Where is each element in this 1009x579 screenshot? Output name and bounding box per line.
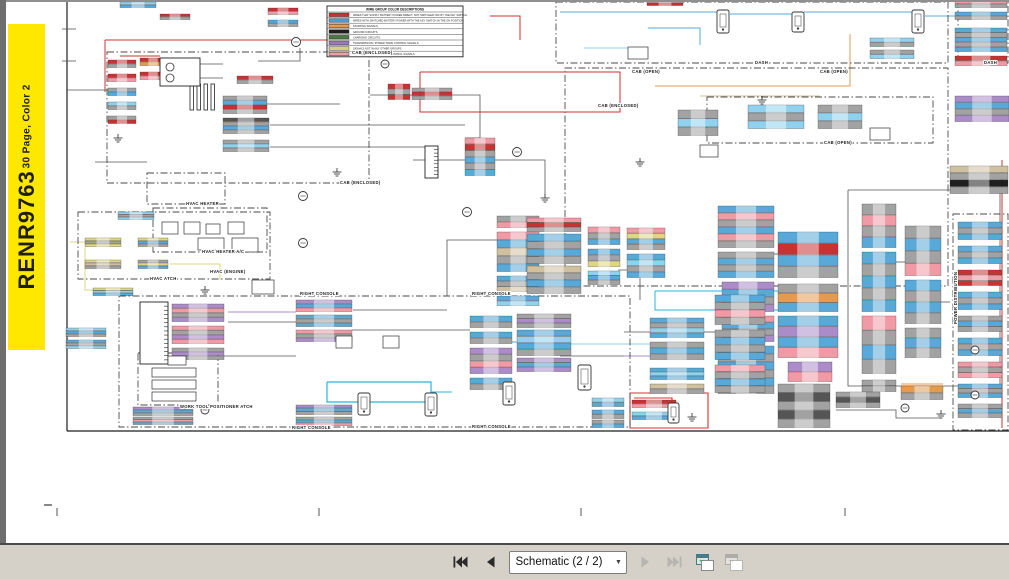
harness-label-band <box>152 417 174 425</box>
harness-label-band <box>736 206 756 248</box>
region-label: HVAC (ENGINE) <box>210 269 246 274</box>
region-label: WORK TOOL POSITIONER ATCH <box>180 404 253 409</box>
harness-label-band <box>639 254 653 278</box>
legend-swatch <box>329 41 349 45</box>
harness-label-band <box>797 284 819 312</box>
pop-out-button[interactable]: → <box>723 553 743 571</box>
harness-label-band <box>972 246 988 264</box>
region-label: RIGHT CONSOLE <box>292 425 331 430</box>
harness-label-band <box>972 12 991 20</box>
next-page-icon <box>640 555 652 569</box>
harness-label-band <box>602 410 614 419</box>
legend-swatch <box>329 24 349 28</box>
harness-label-band <box>832 105 848 129</box>
component-box <box>336 336 352 348</box>
harness-label-band <box>483 316 498 328</box>
component-box <box>628 47 648 59</box>
legend-swatch <box>329 19 349 23</box>
harness-label-band <box>148 238 159 247</box>
component-box <box>383 336 399 348</box>
region-boundary <box>107 52 369 183</box>
harness-label-band <box>873 204 885 248</box>
harness-label-band <box>972 270 988 286</box>
switch-pin <box>363 410 365 412</box>
key-switch <box>160 58 200 86</box>
harness-label-band <box>475 138 486 176</box>
window-top-edge <box>0 0 1009 2</box>
harness-label-band <box>314 315 334 327</box>
harness-label-band <box>148 72 157 80</box>
last-page-icon <box>666 555 683 569</box>
component-box <box>700 145 718 157</box>
harness-label-band <box>602 398 614 407</box>
prev-page-icon <box>484 555 496 569</box>
region-label: DASH <box>755 60 768 65</box>
harness-label-band <box>544 266 563 294</box>
harness-label-band <box>132 2 145 8</box>
harness-label-band <box>598 249 610 267</box>
legend-row-text: STARTING SIGNALS. <box>353 24 379 28</box>
harness-label-band <box>278 20 289 27</box>
harness-label-band <box>117 116 127 124</box>
harness-label-band <box>884 38 900 47</box>
harness-label-band <box>646 412 662 420</box>
harness-label-band <box>802 362 818 382</box>
switch-pin <box>917 28 919 30</box>
region-label: POWER DISTRIBUTION <box>953 272 958 324</box>
page-select-dropdown[interactable]: Schematic (2 / 2) ▼ <box>509 551 627 574</box>
first-page-icon <box>452 555 469 569</box>
harness-label-band <box>873 380 885 392</box>
page-select-value: Schematic (2 / 2) <box>510 556 612 568</box>
region-label: RIGHT CONSOLE <box>472 424 511 429</box>
component-box <box>228 222 244 234</box>
pop-in-button[interactable]: ← <box>694 553 714 571</box>
harness-label-band <box>79 340 93 349</box>
region-label: CAB (ENCLOSED) <box>598 103 639 108</box>
legend-row-text: GROUND CIRCUITS. <box>353 30 378 34</box>
diode <box>190 84 194 110</box>
component-box <box>252 280 274 294</box>
harness-label-band <box>238 140 255 152</box>
harness-label-band <box>667 384 686 394</box>
region-label: HVAC HEATER A/C <box>202 249 244 254</box>
wire <box>447 240 497 296</box>
harness-label-band <box>97 260 110 269</box>
wire <box>648 28 700 45</box>
region-label: CAB (OPEN) <box>632 69 660 74</box>
harness-label-band <box>189 304 208 322</box>
component-box <box>162 222 178 234</box>
harness-label-band <box>278 8 289 15</box>
last-page-button[interactable] <box>665 552 685 572</box>
harness-label-band <box>483 332 498 344</box>
pop-out-arrow-icon: → <box>727 555 736 564</box>
region-label: CAB (ENCLOSED) <box>340 180 381 185</box>
harness-label-band <box>969 166 990 194</box>
harness-label-band <box>510 296 525 306</box>
harness-label-band <box>117 88 127 96</box>
harness-label-band <box>731 365 749 393</box>
harness-label-band <box>639 228 653 250</box>
harness-label-band <box>797 316 819 358</box>
legend-title: WIRE GROUP COLOR DESCRIPTIONS <box>366 7 424 11</box>
harness-label-band <box>148 58 157 66</box>
component-box <box>184 222 200 234</box>
diode <box>211 84 215 110</box>
diode <box>197 84 201 110</box>
region-label: HVAC HEATER <box>186 201 219 206</box>
legend-row-text: CHARGING CIRCUITS. <box>353 35 381 39</box>
harness-label-band <box>189 326 208 344</box>
wire <box>655 34 850 86</box>
harness-label-band <box>972 404 988 418</box>
harness-label-band <box>598 227 610 245</box>
region-label: HVAC ATCH <box>150 276 177 281</box>
harness-label-band <box>667 318 686 338</box>
legend-row-text: WIRES THAT SUPPLY BATTERY POWER DIRECT. … <box>353 13 468 17</box>
legend-swatch <box>329 47 349 51</box>
harness-label-band <box>106 288 120 296</box>
harness-label-band <box>667 368 686 380</box>
wire <box>490 16 520 40</box>
schematic-viewer-window: WIRE GROUP COLOR DESCRIPTIONSWIRES THAT … <box>0 0 1009 579</box>
region-label: DASH <box>984 60 997 65</box>
diode <box>204 84 208 110</box>
switch-pin <box>583 385 585 387</box>
first-page-button[interactable] <box>451 552 471 572</box>
manual-number: RENR9763 <box>14 170 40 289</box>
pop-in-arrow-icon: ← <box>698 555 707 564</box>
region-boundary <box>147 173 225 204</box>
wire <box>327 382 431 402</box>
switch-pin <box>672 418 674 420</box>
harness-label-band <box>395 84 403 100</box>
harness-label-band <box>884 50 900 59</box>
harness-label-band <box>314 330 334 342</box>
window-left-edge <box>0 0 6 545</box>
harness-label-band <box>534 330 553 356</box>
harness-label-band <box>238 118 255 134</box>
harness-label-band <box>510 216 525 228</box>
harness-label-band <box>850 392 866 408</box>
harness-label-band <box>646 400 662 408</box>
harness-label-band <box>972 362 988 378</box>
wire <box>370 95 480 138</box>
schematic-drawing: WIRE GROUP COLOR DESCRIPTIONSWIRES THAT … <box>0 0 1009 545</box>
legend-swatch <box>329 13 349 17</box>
region-label: RIGHT CONSOLE <box>300 291 339 296</box>
switch-pin <box>430 411 432 413</box>
harness-label-band <box>314 405 334 415</box>
legend-swatch <box>329 35 349 39</box>
component-box <box>870 128 890 140</box>
harness-label-band <box>534 358 553 372</box>
legend-swatch <box>329 30 349 34</box>
component-box <box>152 392 196 401</box>
region-label: CAB (OPEN) <box>820 69 848 74</box>
region-label: RIGHT CONSOLE <box>472 291 511 296</box>
harness-label-band <box>249 76 262 84</box>
harness-label-band <box>117 60 127 68</box>
harness-label-band <box>425 88 439 100</box>
harness-label-band <box>148 260 159 269</box>
component-box <box>152 368 196 377</box>
harness-label-band <box>152 407 174 416</box>
harness-label-band <box>972 222 988 240</box>
harness-label-band <box>736 252 756 278</box>
harness-label-band <box>510 276 525 292</box>
harness-label-band <box>130 212 143 220</box>
wire <box>105 40 350 56</box>
harness-label-band <box>917 280 930 324</box>
harness-label-band <box>97 238 110 247</box>
harness-label-band <box>873 316 885 374</box>
harness-label-band <box>483 348 498 374</box>
switch-pin <box>797 27 799 29</box>
navigation-toolbar: Schematic (2 / 2) ▼ ← <box>0 545 1009 579</box>
pin-connector <box>425 146 438 178</box>
harness-label-band <box>602 420 614 428</box>
harness-label-band <box>667 342 686 360</box>
region-label: CAB (ENCLOSED) <box>352 50 393 55</box>
harness-label-band <box>483 378 498 390</box>
harness-label-band <box>917 226 930 276</box>
harness-label-band <box>598 271 610 285</box>
manual-subtitle: 30 Page, Color 2 <box>21 84 32 168</box>
harness-label-band <box>534 314 553 328</box>
harness-label-band <box>795 384 814 428</box>
harness-label-band <box>797 232 819 278</box>
legend-row-text: WIRES WITH SWITCHED BATTERY POWER WITH T… <box>353 19 464 23</box>
wire <box>836 410 941 418</box>
harness-label-band <box>914 386 929 400</box>
harness-label-band <box>79 328 93 337</box>
harness-label-band <box>691 110 705 136</box>
region-label: CAB (OPEN) <box>824 140 852 145</box>
harness-label-band <box>117 74 127 82</box>
manual-id-banner: RENR9763 30 Page, Color 2 <box>8 24 45 350</box>
harness-label-band <box>731 330 749 360</box>
harness-label-band <box>972 316 988 332</box>
harness-label-band <box>544 234 563 264</box>
next-page-button[interactable] <box>636 552 656 572</box>
harness-label-band <box>766 105 786 129</box>
harness-label-band <box>544 218 563 232</box>
harness-label-band <box>314 300 334 312</box>
component-box <box>168 356 186 365</box>
harness-label-band <box>917 328 930 358</box>
component-box <box>152 380 196 389</box>
wire <box>258 48 300 61</box>
component-box <box>206 224 220 234</box>
chevron-down-icon: ▼ <box>612 559 626 566</box>
harness-label-band <box>117 102 127 110</box>
harness-label-band <box>972 96 991 122</box>
harness-label-band <box>972 28 991 52</box>
harness-label-band <box>873 252 885 312</box>
harness-label-band <box>731 295 749 325</box>
legend-row-text: TRANSMISSION / POWER TRAIN CONTROL SIGNA… <box>353 41 419 45</box>
prev-page-button[interactable] <box>480 552 500 572</box>
harness-label-band <box>170 14 181 20</box>
switch-pin <box>508 400 510 402</box>
harness-label-band <box>972 292 988 310</box>
harness-label-band <box>510 232 525 272</box>
harness-label-band <box>237 96 253 114</box>
legend-swatch <box>329 52 349 56</box>
harness-label-band <box>189 348 208 360</box>
switch-pin <box>722 28 724 30</box>
pin-connector <box>140 302 168 364</box>
